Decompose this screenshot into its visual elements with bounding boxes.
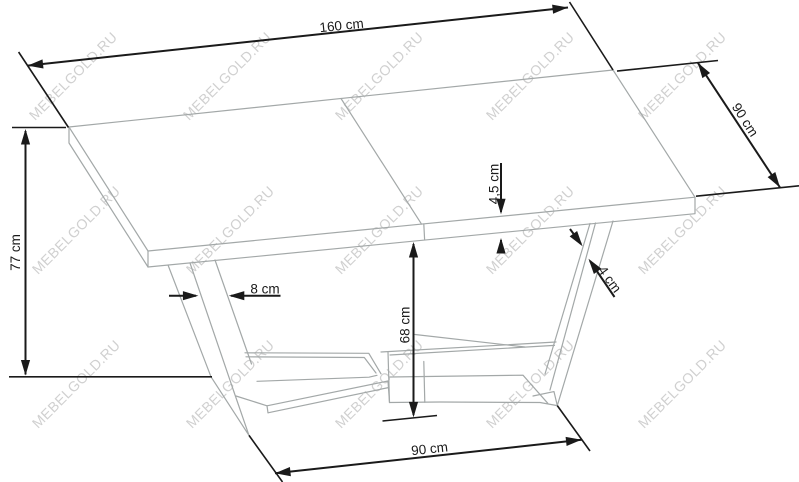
svg-text:160 cm: 160 cm [319, 16, 365, 36]
svg-text:MEBELGOLD.RU: MEBELGOLD.RU [183, 337, 277, 431]
svg-text:MEBELGOLD.RU: MEBELGOLD.RU [29, 183, 123, 277]
svg-text:MEBELGOLD.RU: MEBELGOLD.RU [635, 29, 729, 123]
svg-text:4 cm: 4 cm [595, 263, 624, 295]
svg-text:MEBELGOLD.RU: MEBELGOLD.RU [635, 337, 729, 431]
svg-text:4,5 cm: 4,5 cm [487, 164, 502, 205]
svg-text:MEBELGOLD.RU: MEBELGOLD.RU [29, 337, 123, 431]
svg-text:MEBELGOLD.RU: MEBELGOLD.RU [26, 29, 120, 123]
svg-text:MEBELGOLD.RU: MEBELGOLD.RU [483, 29, 577, 123]
svg-text:MEBELGOLD.RU: MEBELGOLD.RU [183, 183, 277, 277]
svg-text:68 cm: 68 cm [398, 307, 413, 344]
svg-text:MEBELGOLD.RU: MEBELGOLD.RU [635, 183, 729, 277]
svg-text:MEBELGOLD.RU: MEBELGOLD.RU [332, 29, 426, 123]
svg-text:8 cm: 8 cm [250, 282, 279, 297]
svg-text:90 cm: 90 cm [729, 100, 761, 139]
svg-text:77 cm: 77 cm [8, 234, 23, 271]
